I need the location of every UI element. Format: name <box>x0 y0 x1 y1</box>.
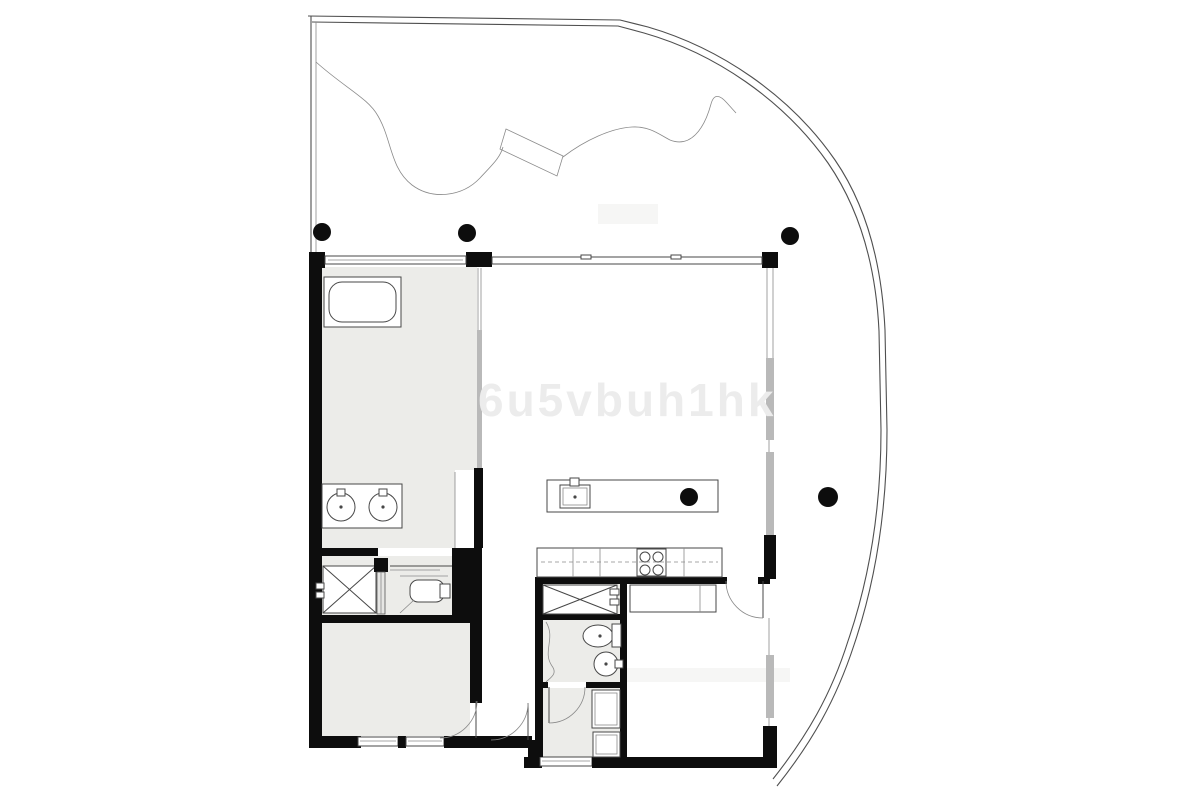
bedroom1-window <box>406 737 444 746</box>
garden-bed-line-right <box>563 96 736 157</box>
bath2-west-wall <box>535 577 543 757</box>
kitchen-south-wall <box>535 577 727 584</box>
west-wall <box>309 253 322 748</box>
garden-bed-line-left <box>316 62 503 195</box>
living-window <box>492 255 762 264</box>
bedroom2-east-wall <box>763 618 777 768</box>
top-left-corner <box>309 252 325 268</box>
bath2-east-wall <box>620 577 627 768</box>
bedroom2-south-wall <box>620 757 777 768</box>
wardrobe-x <box>543 585 619 614</box>
garden-bed <box>316 62 736 195</box>
door-jamb <box>758 577 770 584</box>
sliding-door-post <box>374 558 388 572</box>
laundry-window <box>540 757 592 766</box>
bedroom1-east-wall <box>470 615 482 703</box>
column-dot <box>781 227 799 245</box>
bedroom1-window <box>358 737 398 746</box>
column-dot <box>458 224 476 242</box>
kitchen-island <box>547 478 718 512</box>
service-chase <box>452 548 482 618</box>
entry-door-swing <box>491 703 528 740</box>
bedroom2-window <box>766 655 774 718</box>
bathroom-window <box>325 256 466 264</box>
toilet <box>583 624 621 647</box>
bath2-wardrobe-wall <box>535 614 625 620</box>
cooktop <box>637 549 666 576</box>
watermark-smudge <box>618 668 790 682</box>
bathtub <box>324 277 401 327</box>
bedroom1-floor <box>322 622 470 736</box>
valve-symbol <box>316 592 324 598</box>
washer <box>592 690 620 728</box>
column-dot <box>818 487 838 507</box>
watermark-text: 6u5vbuh1hk <box>478 374 776 426</box>
planter-walkway <box>500 129 563 176</box>
kitchen-counter <box>537 548 722 577</box>
bathroom-south-wall <box>322 548 378 556</box>
handle-symbol <box>610 589 619 595</box>
bedroom1-north-wall <box>309 615 482 623</box>
column-dot <box>680 488 698 506</box>
watermark-smudge <box>598 204 658 224</box>
valve-symbol <box>316 583 324 589</box>
top-right-corner <box>762 252 778 268</box>
bath2-laundry-wall <box>586 682 625 688</box>
floor-plan-canvas: 6u5vbuh1hk <box>0 0 1200 800</box>
floor-plan-drawing: 6u5vbuh1hk <box>0 0 1200 800</box>
column-dot <box>313 223 331 241</box>
top-wall-pier <box>466 252 492 267</box>
wardrobe-x <box>323 566 376 613</box>
bath2-laundry-wall <box>535 682 548 688</box>
double-vanity <box>322 484 402 528</box>
handle-symbol <box>610 599 619 605</box>
partition-wall <box>474 468 483 548</box>
door-swing <box>726 581 763 618</box>
glass-partition <box>477 268 482 468</box>
dryer <box>593 732 620 757</box>
built-in-wardrobe <box>630 585 716 612</box>
kitchen <box>537 478 722 577</box>
bedroom2 <box>630 581 763 618</box>
